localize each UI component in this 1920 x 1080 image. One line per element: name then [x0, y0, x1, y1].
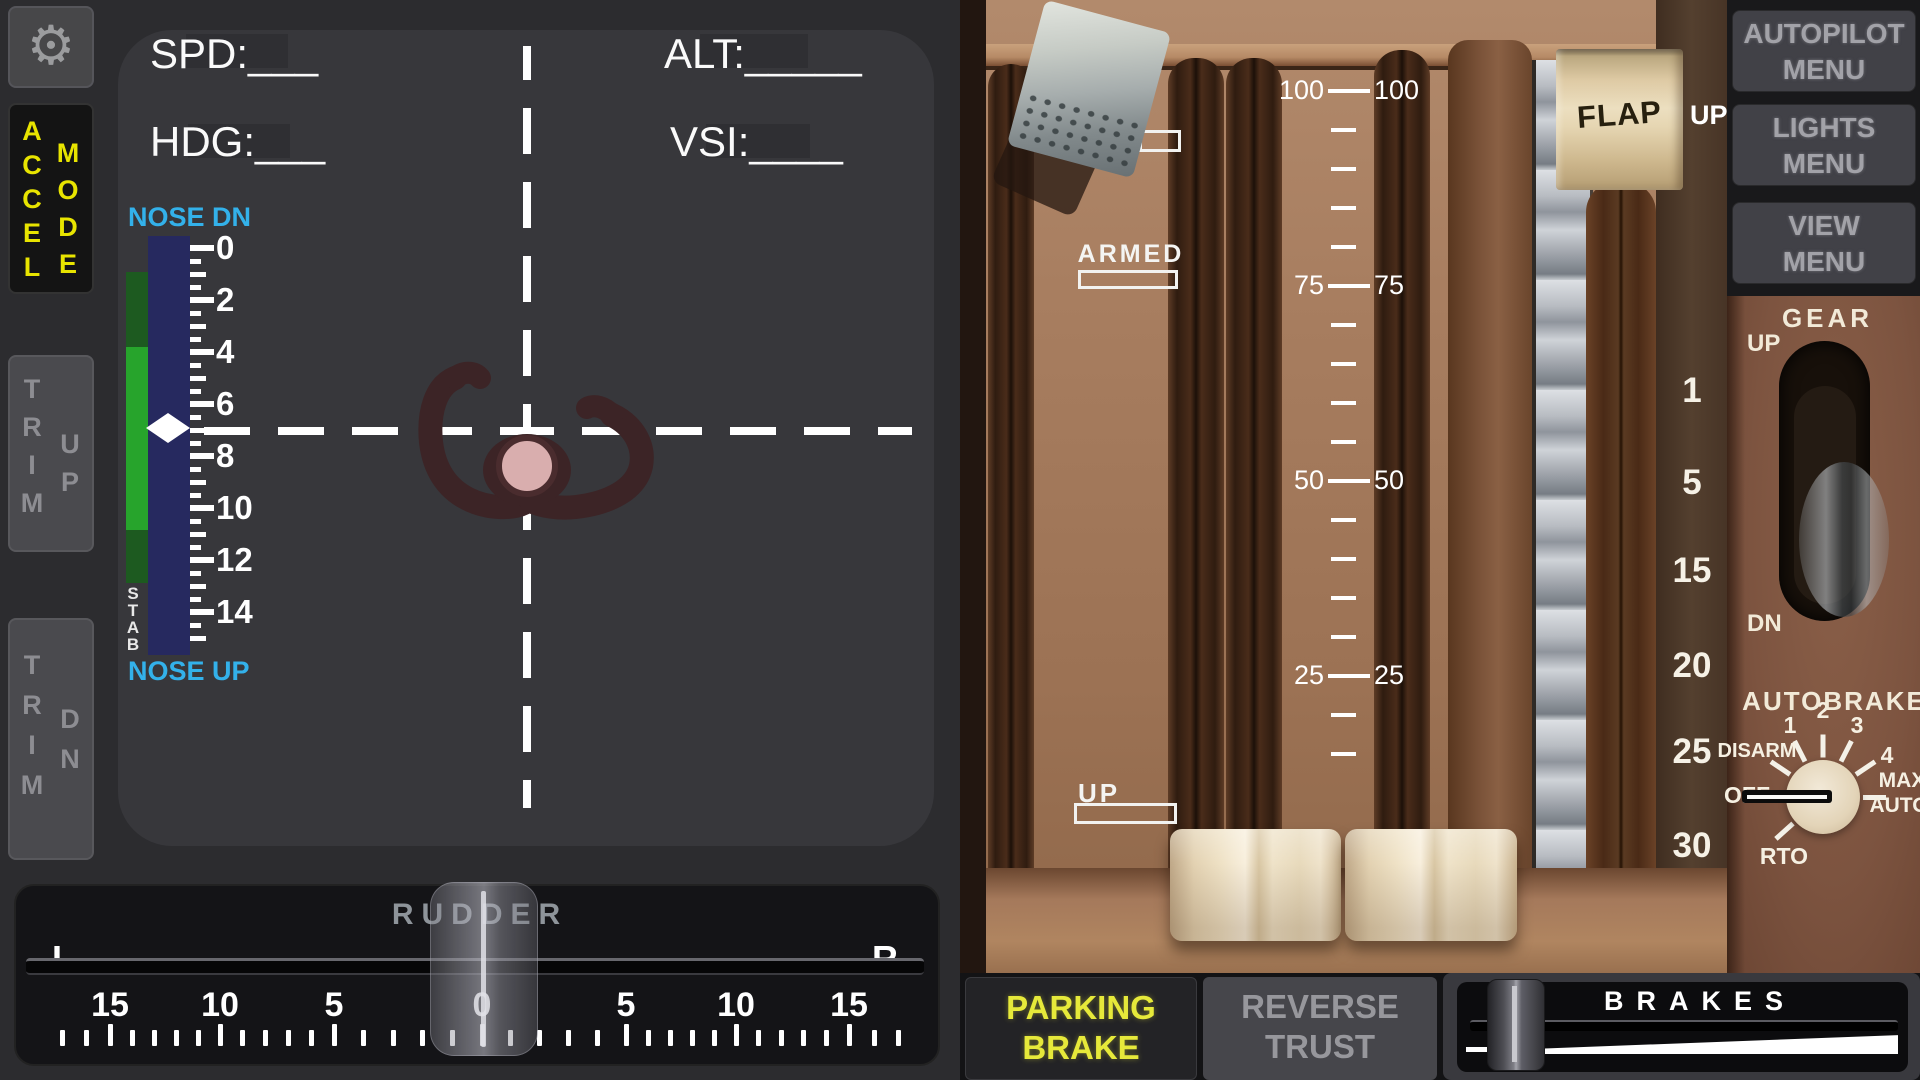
trim-dn-button[interactable]: TRIMDN [8, 618, 94, 860]
button-letter: E [54, 249, 82, 280]
thrust-lever-1-knob[interactable] [1170, 829, 1341, 941]
accel-mode-button[interactable]: ACCELMODE [8, 103, 94, 294]
autobrake-pointer-line [1747, 795, 1827, 799]
rudder-scale-number: 15 [80, 986, 140, 1025]
menu-line: VIEW [1733, 208, 1915, 244]
speedbrake-scale-label: 25 [1262, 660, 1324, 691]
speedbrake-scale-label: 50 [1374, 465, 1436, 496]
rudder-knob-centerline [481, 891, 486, 1047]
autobrake-title: AUTOBRAKE [1714, 686, 1920, 717]
rudder-tick [286, 1030, 291, 1046]
view-menu-button[interactable]: VIEW MENU [1732, 202, 1916, 284]
rudder-tick [668, 1030, 673, 1046]
gear-panel-shadow [1727, 296, 1745, 973]
brakes-title: BRAKES [1530, 986, 1870, 1017]
parking-brake-line: PARKING [966, 988, 1196, 1028]
speedbrake-minor-tick [1331, 323, 1356, 327]
rudder-tick [420, 1030, 425, 1046]
app-root: SPD:___ ALT:_____ HDG:___ VSI:____ NOSE … [0, 0, 1920, 1080]
button-letter: C [18, 150, 46, 181]
rudder-slider-knob[interactable] [430, 882, 538, 1056]
throttle-slot-3 [1374, 50, 1430, 874]
rudder-tick [130, 1030, 135, 1046]
menu-line: LIGHTS [1733, 110, 1915, 146]
button-letter: A [18, 116, 46, 147]
speedbrake-scale-line [1328, 89, 1370, 93]
brakes-knob-centerline [1512, 986, 1517, 1062]
speedbrake-scale-label: 25 [1374, 660, 1436, 691]
gear-handle-knob[interactable] [1799, 462, 1889, 617]
rudder-tick [595, 1030, 600, 1046]
speedbrake-minor-tick [1331, 206, 1356, 210]
rudder-scale-number: 15 [819, 986, 879, 1025]
speedbrake-scale-label: 75 [1262, 270, 1324, 301]
menu-line: MENU [1733, 244, 1915, 280]
trim-up-button[interactable]: TRIMUP [8, 355, 94, 552]
button-letter: E [18, 218, 46, 249]
flap-detent-label: 15 [1660, 551, 1724, 591]
reverse-thrust-line: TRUST [1203, 1027, 1437, 1067]
lights-menu-button[interactable]: LIGHTS MENU [1732, 104, 1916, 186]
menu-line: MENU [1733, 146, 1915, 182]
flap-knob-label: FLAP [1555, 93, 1684, 138]
flap-lever-knob[interactable]: FLAP [1556, 49, 1683, 190]
button-letter: M [54, 138, 82, 169]
up-detent-box [1074, 803, 1177, 824]
rudder-tick [332, 1024, 337, 1046]
flap-lever-slot [1586, 182, 1656, 873]
rudder-tick [896, 1030, 901, 1046]
speedbrake-minor-tick [1331, 557, 1356, 561]
button-letter: D [54, 212, 82, 243]
trim-pointer-diamond[interactable] [146, 413, 190, 443]
autobrake-label: DISARM [1697, 740, 1817, 763]
menu-line: AUTOPILOT [1733, 16, 1915, 52]
button-letter: C [18, 184, 46, 215]
flap-detent-label: 20 [1660, 646, 1724, 686]
rudder-scale-number: 10 [706, 986, 766, 1025]
rudder-tick [779, 1030, 784, 1046]
rudder-tick [391, 1030, 396, 1046]
flap-position-label: UP [1690, 100, 1728, 131]
speedbrake-minor-tick [1331, 518, 1356, 522]
gear-icon: ⚙ [10, 8, 92, 84]
speedbrake-minor-tick [1331, 362, 1356, 366]
flap-detent-label: 1 [1660, 371, 1724, 411]
gear-up-label: UP [1747, 330, 1780, 358]
rudder-tick [60, 1030, 65, 1046]
button-letter: M [18, 488, 46, 519]
speedbrake-detent-box [1139, 130, 1181, 152]
armed-label: ARMED [1076, 240, 1186, 269]
button-letter: R [18, 690, 46, 721]
flap-detent-label: 5 [1660, 463, 1724, 503]
flap-detent-label: 30 [1660, 826, 1724, 866]
rudder-tick [218, 1024, 223, 1046]
speedbrake-minor-tick [1331, 167, 1356, 171]
armed-detent-box [1078, 270, 1178, 289]
rudder-tick [152, 1030, 157, 1046]
quadrant-column [1448, 40, 1532, 873]
button-letter: R [18, 412, 46, 443]
button-letter: L [18, 252, 46, 283]
speedbrake-minor-tick [1331, 713, 1356, 717]
rudder-tick [690, 1030, 695, 1046]
rudder-tick [756, 1030, 761, 1046]
thrust-lever-2-knob[interactable] [1345, 829, 1517, 941]
rudder-tick [263, 1030, 268, 1046]
settings-button[interactable]: ⚙ [8, 6, 94, 88]
speedbrake-minor-tick [1331, 635, 1356, 639]
speedbrake-minor-tick [1331, 596, 1356, 600]
speedbrake-minor-tick [1331, 752, 1356, 756]
speedbrake-minor-tick [1331, 245, 1356, 249]
rudder-tick [108, 1024, 113, 1046]
button-letter: I [18, 730, 46, 761]
speedbrake-scale-line [1328, 674, 1370, 678]
speedbrake-minor-tick [1331, 401, 1356, 405]
autobrake-label: RTO [1724, 843, 1844, 870]
speedbrake-minor-tick [1331, 440, 1356, 444]
speedbrake-scale-label: 75 [1374, 270, 1436, 301]
rudder-scale-number: 10 [190, 986, 250, 1025]
button-letter: N [56, 744, 84, 775]
rudder-tick [196, 1030, 201, 1046]
button-letter: D [56, 704, 84, 735]
parking-brake-button[interactable]: PARKING BRAKE [965, 977, 1197, 1080]
rudder-tick [309, 1030, 314, 1046]
rudder-tick [646, 1030, 651, 1046]
rudder-tick [734, 1024, 739, 1046]
rudder-tick [84, 1030, 89, 1046]
rudder-scale-number: 5 [304, 986, 364, 1025]
quadrant-left-edge [960, 0, 986, 973]
speedbrake-scale-line [1328, 479, 1370, 483]
button-letter: M [18, 770, 46, 801]
crosshair [192, 46, 912, 808]
speedbrake-scale-label: 50 [1262, 465, 1324, 496]
rudder-tick [240, 1030, 245, 1046]
gear-dn-label: DN [1747, 610, 1782, 638]
rudder-tick [847, 1024, 852, 1046]
rudder-scale-number: 5 [596, 986, 656, 1025]
button-letter: U [56, 429, 84, 460]
speedbrake-scale-label: 100 [1262, 75, 1324, 106]
reverse-thrust-line: REVERSE [1203, 987, 1437, 1027]
rudder-tick [801, 1030, 806, 1046]
yoke-icon [430, 373, 641, 508]
throttle-slot-1 [1168, 58, 1224, 874]
rudder-tick [566, 1030, 571, 1046]
button-letter: T [18, 650, 46, 681]
brakes-slider-knob[interactable] [1487, 979, 1545, 1071]
rudder-tick [824, 1030, 829, 1046]
rudder-tick [174, 1030, 179, 1046]
brakes-wedge-start [1466, 1047, 1488, 1052]
speedbrake-scale-line [1328, 284, 1370, 288]
rudder-tick [712, 1030, 717, 1046]
reverse-thrust-button[interactable]: REVERSE TRUST [1203, 977, 1437, 1080]
menu-line: MENU [1733, 52, 1915, 88]
autopilot-menu-button[interactable]: AUTOPILOT MENU [1732, 10, 1916, 92]
button-letter: P [56, 467, 84, 498]
button-letter: I [18, 450, 46, 481]
rudder-tick [361, 1030, 366, 1046]
speedbrake-minor-tick [1331, 128, 1356, 132]
parking-brake-line: BRAKE [966, 1028, 1196, 1068]
button-letter: O [54, 175, 82, 206]
speedbrake-scale-label: 100 [1374, 75, 1436, 106]
rudder-tick [624, 1024, 629, 1046]
button-letter: T [18, 374, 46, 405]
rudder-tick [872, 1030, 877, 1046]
